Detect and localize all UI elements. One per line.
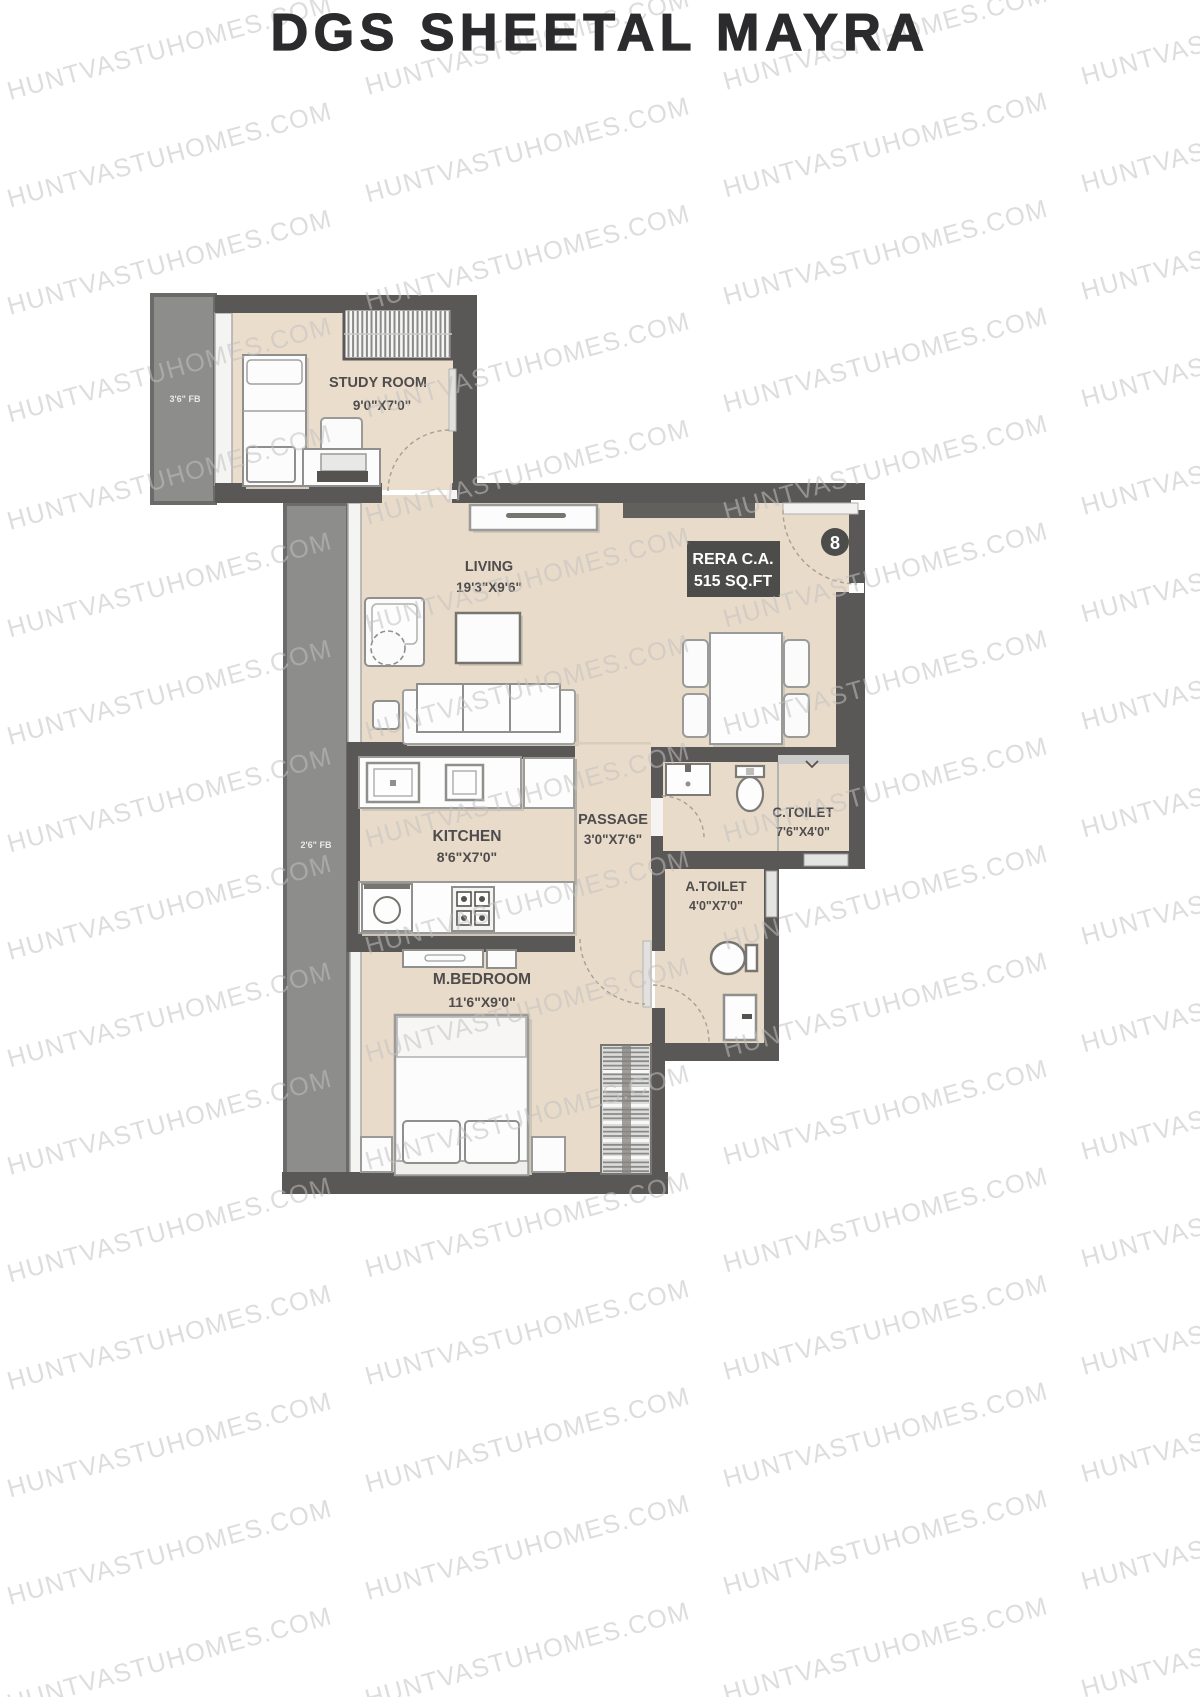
- svg-text:A.TOILET: A.TOILET: [685, 879, 747, 894]
- svg-text:RERA C.A.: RERA C.A.: [692, 551, 773, 568]
- svg-text:4'0"X7'0": 4'0"X7'0": [689, 899, 743, 913]
- svg-text:3'6" FB: 3'6" FB: [170, 394, 201, 404]
- svg-text:3'0"X7'6": 3'0"X7'6": [584, 832, 642, 847]
- svg-text:2'6" FB: 2'6" FB: [301, 840, 332, 850]
- svg-text:8: 8: [830, 533, 840, 553]
- svg-text:8'6"X7'0": 8'6"X7'0": [437, 849, 497, 865]
- svg-text:515 SQ.FT: 515 SQ.FT: [694, 573, 772, 590]
- svg-text:PASSAGE: PASSAGE: [578, 812, 648, 828]
- svg-text:M.BEDROOM: M.BEDROOM: [433, 971, 531, 988]
- svg-text:DGS SHEETAL MAYRA: DGS SHEETAL MAYRA: [271, 4, 930, 62]
